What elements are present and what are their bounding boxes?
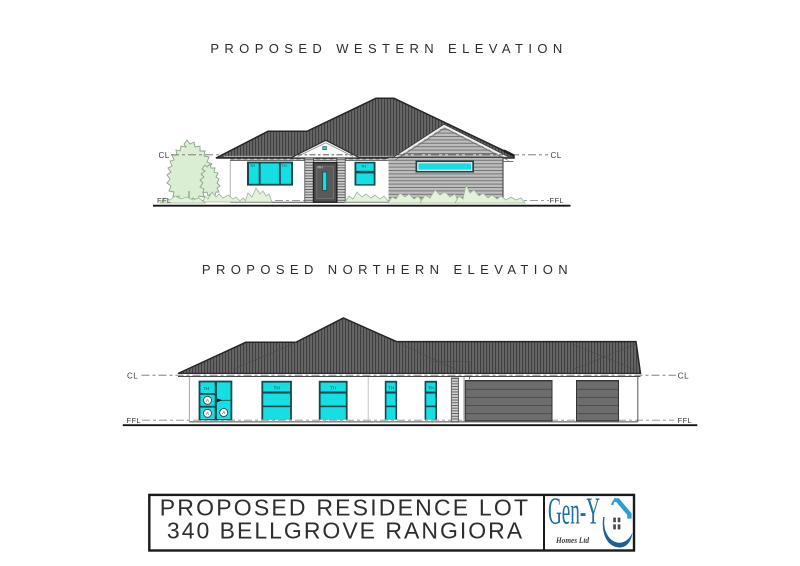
svg-text:A: A [222,410,225,415]
svg-text:CL: CL [127,371,138,380]
svg-text:FFL: FFL [157,196,171,205]
svg-text:PROPOSED NORTHERN ELEVATION: PROPOSED NORTHERN ELEVATION [202,262,573,277]
svg-text:CL: CL [551,151,562,160]
svg-text:TH: TH [361,164,366,168]
svg-text:CL: CL [678,371,689,380]
svg-text:TH: TH [282,164,287,168]
svg-text:FFL: FFL [127,416,141,425]
svg-text:TH: TH [428,385,434,390]
svg-text:FFL: FFL [550,196,564,205]
svg-text:TH: TH [330,385,336,390]
svg-text:340 BELLGROVE RANGIORA: 340 BELLGROVE RANGIORA [167,518,524,544]
svg-text:TH: TH [274,385,280,390]
svg-text:RH: RH [318,165,324,169]
svg-text:TH: TH [203,386,209,391]
svg-text:A: A [206,398,209,403]
svg-text:TH: TH [388,385,394,390]
svg-text:Homes Ltd: Homes Ltd [555,535,589,545]
svg-text:Gen-Y: Gen-Y [548,491,600,533]
svg-text:TH: TH [250,164,255,168]
svg-text:FFL: FFL [678,416,692,425]
svg-text:A: A [206,411,209,416]
svg-text:PROPOSED WESTERN ELEVATION: PROPOSED WESTERN ELEVATION [210,41,567,56]
svg-text:CL: CL [159,151,170,160]
